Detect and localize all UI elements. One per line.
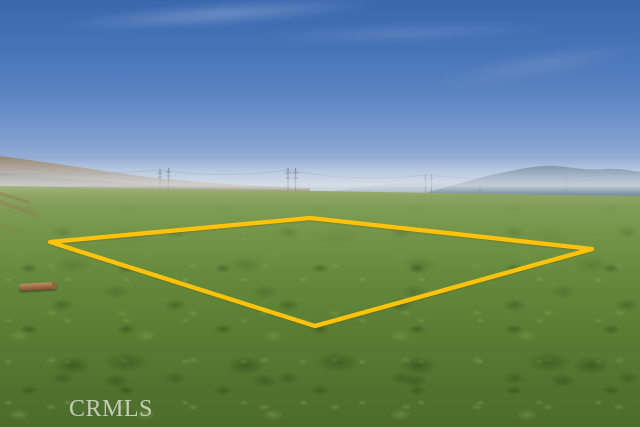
aerial-land-photo: CRMLS <box>0 0 640 427</box>
parcel-boundary-overlay <box>0 0 640 427</box>
crmls-watermark: CRMLS <box>69 397 153 421</box>
parcel-boundary-line <box>50 218 592 326</box>
